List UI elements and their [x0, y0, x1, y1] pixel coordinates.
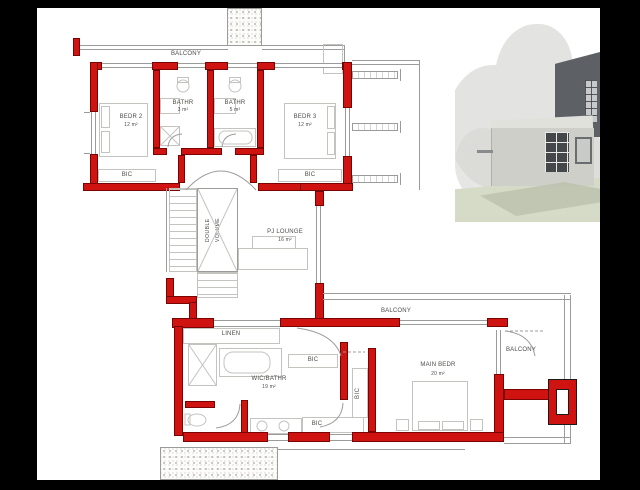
threshold	[330, 440, 352, 441]
wall-bathroom	[153, 70, 160, 148]
rail-line	[352, 60, 420, 61]
wall	[183, 432, 268, 442]
room-area: 12 m²	[275, 123, 335, 129]
balcony-label: BALCONY	[362, 308, 430, 315]
wall	[185, 401, 215, 408]
nightstand	[470, 419, 483, 431]
beam-tick	[400, 121, 401, 133]
house-3d-render	[455, 10, 600, 222]
pergola-beam	[352, 175, 398, 183]
balcony-post-wall	[73, 38, 80, 56]
window	[228, 63, 257, 68]
terrace-line	[278, 449, 465, 450]
wall-pier	[487, 318, 508, 327]
bathtub	[214, 128, 256, 147]
stair-treads	[169, 188, 197, 272]
balcony-edge	[504, 443, 571, 444]
beam-tick	[400, 173, 401, 185]
pillow	[327, 132, 335, 155]
balcony-edge	[504, 437, 571, 438]
balcony-rail-return	[344, 45, 345, 62]
window	[178, 63, 205, 68]
balcony-rail-line	[80, 45, 228, 46]
room-name: BATHR	[212, 100, 258, 107]
wall	[300, 183, 353, 191]
bic-label: BIC	[278, 172, 342, 179]
beam-tick	[400, 69, 401, 81]
stair-treads-lower	[197, 272, 238, 298]
wall	[340, 342, 348, 400]
room-name: BATHR	[160, 100, 206, 107]
wall-bathroom	[257, 70, 264, 148]
nightstand	[396, 419, 409, 431]
double-volume-label: DOUBLE	[206, 200, 212, 260]
room-area: 19 m²	[238, 385, 300, 391]
wall	[205, 62, 228, 70]
balcony-top-label: BALCONY	[151, 51, 221, 58]
window	[316, 206, 321, 283]
bic-label: BIC	[355, 379, 362, 407]
balcony-edge	[323, 293, 571, 294]
wall	[494, 374, 504, 438]
room-name: BEDR 2	[101, 114, 161, 121]
wall	[280, 318, 400, 327]
window	[496, 330, 501, 375]
rail-line	[352, 64, 420, 65]
room-name: PJ LOUNGE	[254, 229, 316, 236]
wall-bathroom	[235, 148, 264, 155]
bathtub	[219, 348, 282, 377]
concrete-column	[227, 8, 262, 46]
wall	[315, 191, 324, 206]
linen-line	[214, 320, 280, 321]
room-area: 16 m²	[254, 238, 316, 244]
room-name: MAIN BEDR	[407, 362, 469, 369]
wall	[315, 283, 324, 323]
render-window-dark	[545, 132, 569, 172]
window-sliding	[400, 320, 487, 325]
wall	[174, 326, 183, 436]
room-area: 3 m²	[160, 108, 206, 114]
concrete-patio	[160, 447, 278, 480]
wall-bathroom	[153, 148, 167, 155]
pergola-beam	[352, 71, 398, 79]
wall	[241, 400, 248, 434]
sofa-outline	[238, 248, 308, 270]
room-area: 20 m²	[407, 372, 469, 378]
room-area: 12 m²	[101, 123, 161, 129]
basin	[177, 77, 189, 83]
balcony-rail-line	[80, 49, 228, 50]
threshold	[268, 434, 288, 435]
wall-corridor	[250, 155, 257, 183]
bic-label: BIC	[288, 357, 338, 364]
window	[345, 108, 350, 156]
dimension-line	[419, 60, 420, 190]
wall	[368, 348, 376, 432]
wall	[352, 432, 504, 442]
planter-outline	[323, 44, 343, 74]
stair-rail	[166, 188, 167, 272]
wall	[257, 62, 275, 70]
room-name: BEDR 3	[275, 114, 335, 121]
bic-label: BIC	[98, 172, 156, 179]
pergola-beam	[352, 123, 398, 131]
window-tick	[84, 153, 90, 154]
bic-label: BIC	[292, 421, 342, 428]
drawing-frame: BALCONY BEDR 2 12 m² BATHR 3 m² BATHR 5 …	[0, 0, 640, 490]
room-name: WIC/BATHR	[238, 376, 300, 383]
double-volume-label: VOLUME	[216, 200, 222, 260]
threshold	[330, 434, 352, 435]
pillow	[101, 131, 110, 153]
window	[102, 63, 152, 68]
wall	[152, 62, 178, 70]
pillow	[442, 421, 464, 430]
wall	[288, 432, 330, 442]
pillow	[418, 421, 440, 430]
wall-corridor	[178, 155, 185, 183]
wall	[90, 62, 98, 112]
render-fence	[477, 150, 493, 153]
window-tick	[84, 112, 90, 113]
threshold	[268, 440, 288, 441]
render-window	[575, 137, 592, 164]
shower	[188, 344, 217, 386]
linen-label: LINEN	[193, 331, 269, 338]
wall-bathroom	[181, 148, 222, 155]
wall	[343, 62, 352, 108]
room-area: 5 m²	[212, 108, 258, 114]
chimney-flue	[556, 389, 569, 415]
basin	[229, 77, 241, 83]
balcony-edge	[323, 299, 571, 300]
shower	[160, 126, 180, 146]
window	[275, 63, 342, 68]
wall-fireplace-link	[504, 389, 550, 400]
linen-line	[214, 326, 280, 327]
window	[91, 112, 96, 154]
